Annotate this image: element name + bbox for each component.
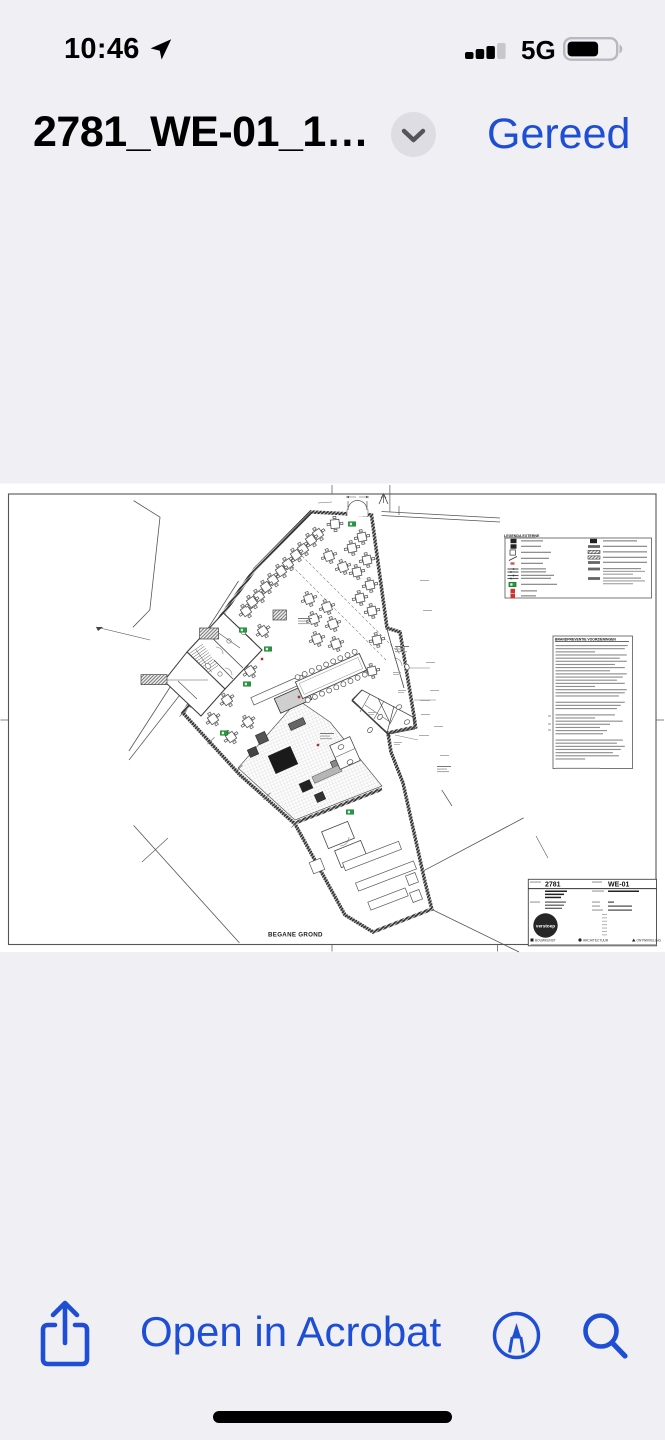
svg-text:LEGENDA EXTERNE: LEGENDA EXTERNE <box>504 534 540 538</box>
svg-text:WE-01: WE-01 <box>608 882 630 889</box>
svg-text:ONTWIKKELING: ONTWIKKELING <box>637 939 662 943</box>
svg-text:BOUWKUNST: BOUWKUNST <box>535 939 556 943</box>
svg-text:ARCHITECTUUR: ARCHITECTUUR <box>583 939 609 943</box>
svg-text:BEGANE GROND: BEGANE GROND <box>268 932 323 939</box>
svg-text:BRANDPREVENTIE VOORZIENINGEN: BRANDPREVENTIE VOORZIENINGEN <box>555 638 616 642</box>
svg-text:verstoep: verstoep <box>536 924 555 929</box>
svg-text:2781: 2781 <box>545 882 561 889</box>
